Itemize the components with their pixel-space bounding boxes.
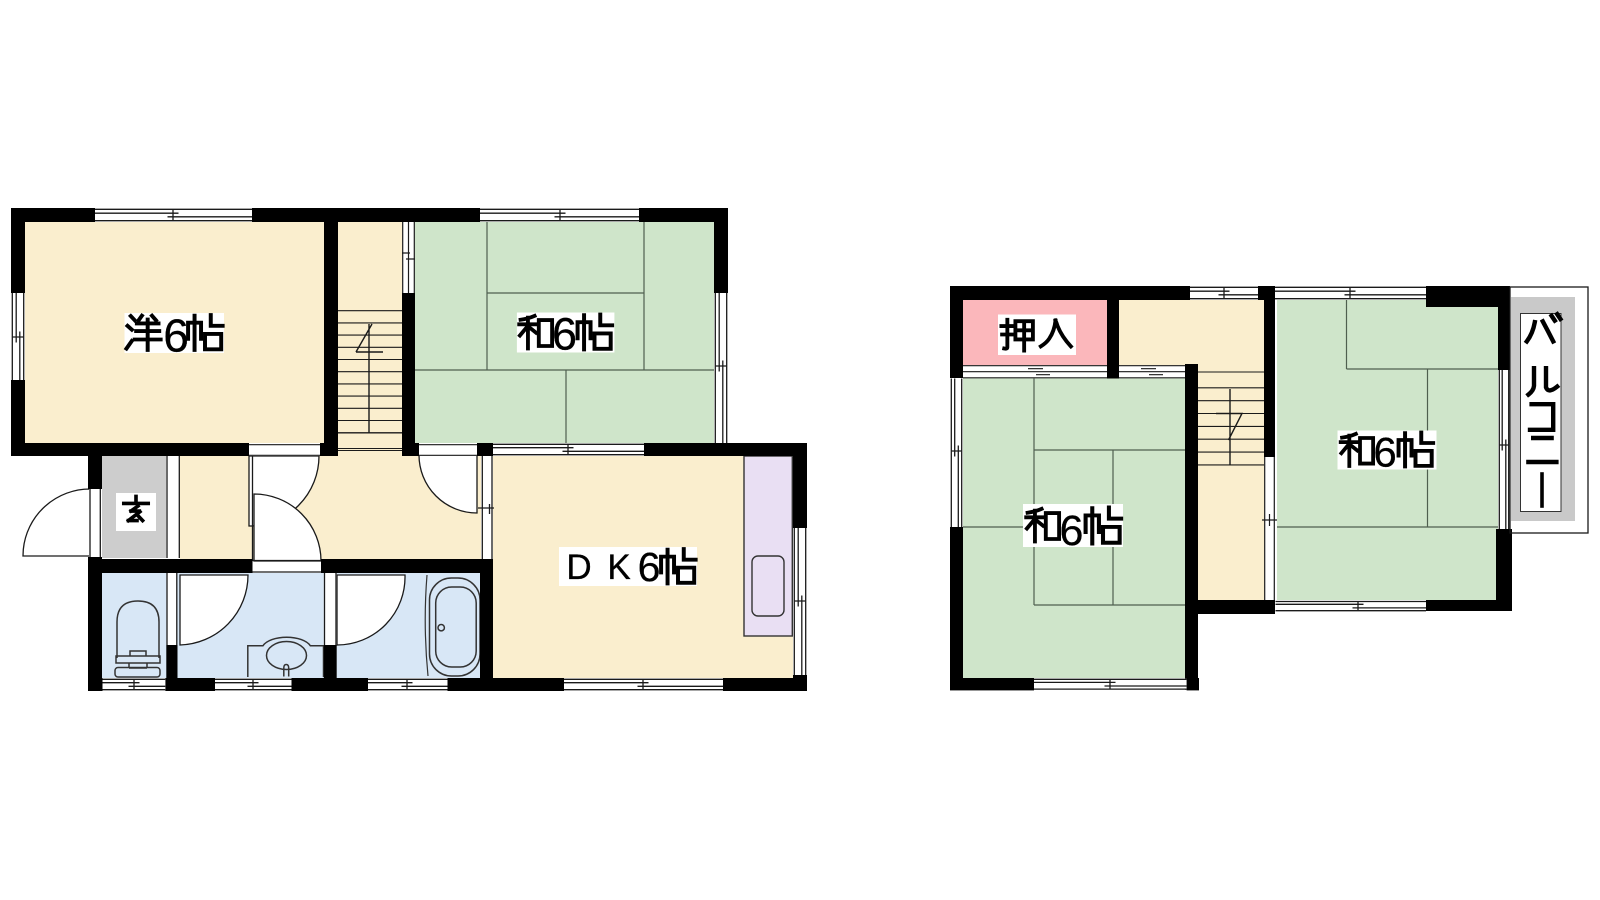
- svg-text:6: 6: [163, 310, 189, 362]
- svg-text:6: 6: [1060, 507, 1084, 555]
- svg-text:D: D: [566, 548, 591, 587]
- svg-text:K: K: [607, 548, 630, 587]
- svg-text:6: 6: [1373, 429, 1396, 476]
- svg-text:6: 6: [638, 544, 661, 590]
- svg-text:6: 6: [552, 309, 577, 360]
